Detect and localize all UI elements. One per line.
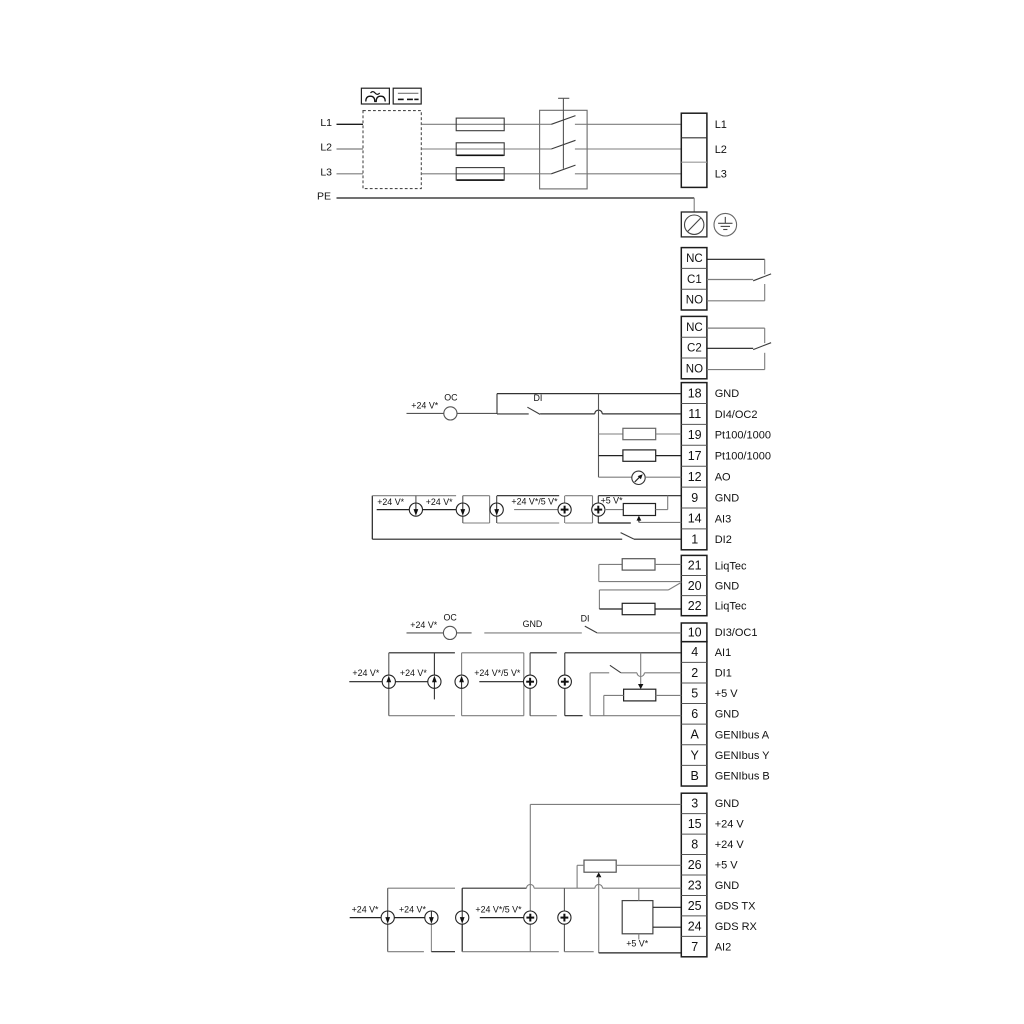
- svg-text:8: 8: [691, 838, 698, 852]
- svg-text:6: 6: [691, 707, 698, 721]
- svg-text:GND: GND: [715, 580, 740, 592]
- svg-text:LiqTec: LiqTec: [715, 600, 747, 612]
- svg-text:GND: GND: [715, 388, 740, 400]
- svg-text:+24 V*/5 V*: +24 V*/5 V*: [475, 905, 522, 915]
- svg-text:+5 V*: +5 V*: [601, 496, 624, 506]
- svg-text:7: 7: [691, 940, 698, 954]
- svg-text:12: 12: [688, 470, 702, 484]
- svg-text:GND: GND: [715, 709, 740, 721]
- svg-text:NC: NC: [686, 253, 703, 265]
- svg-text:AO: AO: [715, 471, 731, 483]
- svg-text:4: 4: [691, 645, 698, 659]
- svg-text:Pt100/1000: Pt100/1000: [715, 451, 771, 463]
- svg-text:DI4/OC2: DI4/OC2: [715, 409, 758, 421]
- svg-text:3: 3: [691, 797, 698, 811]
- svg-text:+24 V*: +24 V*: [411, 400, 438, 410]
- svg-text:NC: NC: [686, 322, 703, 334]
- svg-text:+24 V*/5 V*: +24 V*/5 V*: [474, 668, 521, 678]
- svg-text:+5 V*: +5 V*: [626, 938, 649, 948]
- svg-text:10: 10: [688, 626, 702, 640]
- svg-text:AI3: AI3: [715, 513, 732, 525]
- svg-text:15: 15: [688, 817, 702, 831]
- svg-text:L2: L2: [320, 142, 332, 154]
- svg-text:+24 V*/5 V*: +24 V*/5 V*: [511, 496, 558, 506]
- svg-text:+5 V: +5 V: [715, 860, 739, 872]
- svg-text:5: 5: [691, 686, 698, 700]
- svg-text:14: 14: [688, 512, 702, 526]
- svg-text:20: 20: [688, 579, 702, 593]
- svg-text:NO: NO: [686, 295, 703, 307]
- svg-text:GDS TX: GDS TX: [715, 900, 756, 912]
- svg-text:+24 V*: +24 V*: [399, 905, 426, 915]
- svg-text:26: 26: [688, 858, 702, 872]
- svg-text:+24 V*: +24 V*: [352, 668, 379, 678]
- svg-text:OC: OC: [444, 612, 458, 622]
- svg-text:+24 V*: +24 V*: [400, 668, 427, 678]
- svg-text:9: 9: [691, 491, 698, 505]
- svg-text:19: 19: [688, 428, 702, 442]
- svg-text:DI: DI: [534, 393, 543, 403]
- svg-text:21: 21: [688, 559, 702, 573]
- svg-text:+24 V: +24 V: [715, 819, 745, 831]
- svg-text:L2: L2: [715, 144, 727, 156]
- svg-text:17: 17: [688, 449, 702, 463]
- svg-text:GENIbus Y: GENIbus Y: [715, 750, 770, 762]
- svg-text:Y: Y: [691, 748, 700, 762]
- svg-text:GDS RX: GDS RX: [715, 921, 758, 933]
- svg-text:B: B: [691, 769, 699, 783]
- svg-text:LiqTec: LiqTec: [715, 560, 747, 572]
- svg-text:C1: C1: [687, 274, 702, 286]
- svg-text:L3: L3: [715, 169, 727, 181]
- svg-text:25: 25: [688, 899, 702, 913]
- svg-text:GENIbus A: GENIbus A: [715, 729, 770, 741]
- svg-text:C2: C2: [687, 343, 702, 355]
- svg-text:+24 V: +24 V: [715, 839, 745, 851]
- svg-text:24: 24: [688, 919, 702, 933]
- svg-text:GND: GND: [715, 880, 740, 892]
- svg-text:+24 V*: +24 V*: [426, 497, 453, 507]
- svg-text:+5 V: +5 V: [715, 688, 739, 700]
- svg-text:+24 V*: +24 V*: [410, 620, 437, 630]
- svg-text:DI: DI: [581, 614, 590, 624]
- svg-text:A: A: [691, 728, 700, 742]
- svg-text:PE: PE: [317, 191, 331, 203]
- svg-text:11: 11: [688, 407, 701, 421]
- svg-text:DI1: DI1: [715, 667, 732, 679]
- svg-text:GENIbus B: GENIbus B: [715, 771, 770, 783]
- svg-text:+24 V*: +24 V*: [377, 497, 404, 507]
- svg-text:2: 2: [691, 666, 698, 680]
- svg-text:AI1: AI1: [715, 647, 732, 659]
- svg-text:L3: L3: [320, 166, 332, 178]
- svg-text:GND: GND: [715, 798, 740, 810]
- svg-text:18: 18: [688, 386, 702, 400]
- svg-text:AI2: AI2: [715, 941, 732, 953]
- svg-text:DI2: DI2: [715, 534, 732, 546]
- svg-text:GND: GND: [715, 492, 740, 504]
- svg-text:L1: L1: [715, 119, 727, 131]
- svg-text:OC: OC: [444, 393, 458, 403]
- svg-text:22: 22: [688, 599, 702, 613]
- svg-text:DI3/OC1: DI3/OC1: [715, 627, 758, 639]
- svg-text:NO: NO: [686, 363, 703, 375]
- svg-text:Pt100/1000: Pt100/1000: [715, 430, 771, 442]
- svg-text:1: 1: [691, 533, 698, 547]
- svg-text:L1: L1: [320, 117, 332, 129]
- svg-text:GND: GND: [523, 619, 543, 629]
- svg-text:23: 23: [688, 878, 702, 892]
- svg-text:+24 V*: +24 V*: [352, 905, 379, 915]
